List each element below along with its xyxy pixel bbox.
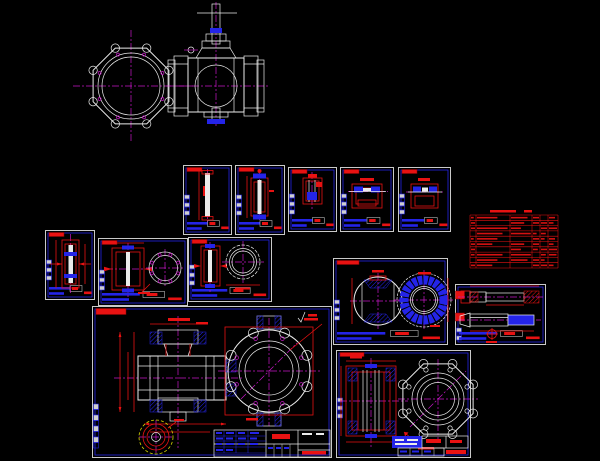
drawing-stem-long[interactable] (50, 234, 91, 295)
table-cell-text (541, 238, 545, 240)
revision-cell (290, 194, 295, 198)
drawing-seat-b[interactable] (406, 178, 444, 208)
revision-cell (335, 304, 340, 308)
drawing-body-section[interactable] (114, 316, 242, 448)
revision-cell (94, 443, 99, 449)
table-cell-text (533, 259, 539, 261)
table-cell-text (549, 254, 557, 256)
table-cell-text (549, 222, 554, 224)
table-cell-text (471, 222, 475, 224)
drawing-ball-section[interactable] (350, 270, 406, 329)
title-block-stamp (72, 287, 78, 290)
table-cell-text (477, 238, 497, 240)
title-block-stamp (395, 332, 409, 335)
table-cell-text (511, 249, 521, 251)
revision-cell (400, 210, 405, 214)
revision-cell (237, 195, 242, 199)
sheet-frame-seat-a[interactable] (341, 168, 394, 232)
part-label-chip (344, 170, 359, 174)
title-block-bar (192, 289, 227, 292)
table-cell-text (471, 254, 475, 256)
title-block-stamp (526, 337, 540, 340)
title-block-bar (344, 224, 360, 227)
sheet-frame-ball[interactable] (334, 259, 448, 345)
title-block-bar (344, 219, 367, 222)
drawing-packing-face[interactable] (138, 249, 184, 294)
revision-cell (400, 194, 405, 198)
table-cell-text (511, 217, 528, 219)
drawing-body-flange[interactable] (218, 316, 322, 426)
table-cell-text (549, 243, 554, 245)
revision-cell (237, 207, 242, 211)
title-block-bar (337, 332, 385, 335)
title-block-stamp (427, 219, 433, 222)
title-block-stamp (439, 224, 447, 227)
revision-cell (342, 210, 347, 214)
revision-cell (237, 199, 242, 203)
part-label-chip (337, 261, 359, 265)
table-cell-text (511, 233, 531, 235)
table-cell-text (471, 227, 475, 229)
table-cell-text (511, 227, 521, 229)
part-label-chip (192, 240, 207, 244)
title-block-bar (49, 292, 64, 295)
revision-cell (342, 206, 347, 210)
title-block-stamp (369, 219, 375, 222)
part-label-chip (96, 309, 126, 315)
table-cell-text (477, 227, 508, 229)
table-cell-text (511, 254, 531, 256)
revision-cell (338, 402, 343, 406)
revision-cell (185, 211, 190, 215)
title-block-stamp (254, 294, 267, 297)
table-cell-text (541, 227, 547, 229)
title-block-stamp (168, 298, 182, 301)
drawing-stem-detail[interactable] (486, 328, 498, 343)
table-cell-text (511, 243, 524, 245)
revision-cell (338, 406, 343, 410)
table-cell-text (477, 217, 497, 219)
part-label-chip (292, 170, 307, 174)
table-cell-text (533, 243, 539, 245)
revision-cell (94, 421, 99, 427)
title-block-bar (239, 227, 254, 230)
revision-cell (190, 281, 195, 285)
table-cell-text (477, 233, 503, 235)
title-block-stamp (221, 227, 228, 230)
table-title-bar (490, 210, 516, 213)
revision-cell (290, 198, 295, 202)
revision-cell (457, 328, 462, 332)
table-cell-text (471, 217, 474, 219)
revision-cell (190, 269, 195, 273)
title-block-bar (402, 219, 424, 222)
part-label-chip (456, 291, 465, 299)
table-cell-text (533, 222, 539, 224)
revision-cell (290, 206, 295, 210)
title-block-bar (192, 294, 217, 297)
part-label-chip (340, 353, 364, 357)
title-block-stamp (262, 222, 268, 225)
assembly-section-view[interactable] (166, 2, 268, 127)
revision-cell (335, 308, 340, 312)
part-label-chip (402, 170, 417, 174)
revision-cell (47, 260, 52, 264)
drawing-bonnet-section[interactable] (340, 356, 408, 448)
revision-cell (338, 410, 343, 414)
revision-cell (290, 210, 295, 214)
table-cell-text (533, 233, 537, 235)
sheet-inner-border (95, 309, 329, 455)
table-cell-text (549, 217, 555, 219)
drawing-stem-lower[interactable] (458, 313, 541, 331)
revision-cell (338, 414, 343, 418)
revision-cell (47, 272, 52, 276)
revision-cell (190, 273, 195, 277)
title-block-stamp (314, 219, 320, 222)
table-cell-text (541, 259, 545, 261)
revision-cell (185, 203, 190, 207)
revision-cell (190, 277, 195, 281)
revision-cell (47, 276, 52, 280)
revision-cell (100, 286, 105, 290)
table-title-bar (524, 210, 532, 213)
title-block-stamp (209, 222, 215, 225)
bonnet-title-block (392, 436, 468, 456)
revision-cell (342, 202, 347, 206)
revision-cell (237, 211, 242, 215)
title-block-stamp (84, 292, 92, 295)
title-block-bar (102, 298, 129, 301)
drawing-pin[interactable] (199, 169, 213, 222)
part-label-chip (102, 241, 117, 245)
drawing-seat-ring-section[interactable] (194, 242, 227, 292)
table-cell-text (471, 265, 475, 267)
table-cell-text (541, 249, 547, 251)
cad-drawing-layer[interactable] (0, 0, 600, 461)
table-cell-text (477, 254, 503, 256)
revision-cell (185, 207, 190, 211)
title-block-stamp (382, 224, 390, 227)
revision-cell (100, 270, 105, 274)
drawing-seat-ring-face[interactable] (222, 241, 264, 290)
sheet-frame-seat-b[interactable] (399, 168, 451, 232)
revision-cell (400, 198, 405, 202)
table-cell-text (549, 265, 554, 267)
revision-cell (94, 410, 99, 416)
title-block-bar (337, 337, 372, 340)
title-block-stamp (423, 337, 440, 340)
revision-cell (237, 203, 242, 207)
revision-cell (94, 426, 99, 432)
revision-cell (94, 437, 99, 443)
table-cell-text (541, 254, 546, 256)
title-block-bar (459, 337, 486, 340)
revision-cell (47, 268, 52, 272)
revision-cell (335, 300, 340, 304)
revision-cell (94, 415, 99, 421)
part-label-chip (187, 168, 202, 172)
drawing-gland[interactable] (303, 172, 322, 210)
part-label-chip (49, 233, 64, 237)
table-cell-text (549, 227, 557, 229)
revision-cell (290, 202, 295, 206)
table-cell-text (533, 249, 538, 251)
table-cell-text (471, 243, 475, 245)
revision-cell (185, 199, 190, 203)
table-cell-text (511, 259, 528, 261)
parts-list-table[interactable] (470, 210, 558, 268)
table-cell-text (477, 259, 497, 261)
title-block-bar (187, 222, 208, 225)
revision-cell (47, 264, 52, 268)
revision-cell (342, 198, 347, 202)
revision-cell (94, 404, 99, 410)
table-cell-text (477, 243, 492, 245)
revision-cell (338, 398, 343, 402)
table-cell-text (541, 233, 546, 235)
table-cell-text (533, 265, 539, 267)
title-block-stamp (274, 227, 282, 230)
revision-cell (342, 194, 347, 198)
revision-cell (100, 282, 105, 286)
table-cell-text (541, 265, 547, 267)
title-block-bar (292, 224, 307, 227)
table-cell-text (533, 238, 539, 240)
title-block-bar (292, 219, 313, 222)
title-block-bar (402, 224, 418, 227)
table-cell-text (549, 238, 555, 240)
title-block-stamp (504, 332, 515, 335)
drawing-stem-small[interactable] (247, 169, 274, 222)
table-cell-text (471, 249, 475, 251)
revision-cell (185, 195, 190, 199)
revision-cell (190, 265, 195, 269)
title-block-bar (187, 227, 202, 230)
drawing-seat-a[interactable] (348, 178, 388, 208)
revision-cell (400, 206, 405, 210)
body-title-block (214, 430, 330, 457)
revision-cell (94, 432, 99, 438)
title-block-stamp (326, 224, 333, 227)
part-label-chip (239, 168, 254, 172)
revision-cell (335, 312, 340, 316)
table-cell-text (533, 217, 539, 219)
title-block-bar (239, 222, 260, 225)
table-cell-text (541, 222, 547, 224)
title-block-bar (102, 293, 140, 296)
revision-cell (400, 202, 405, 206)
drawing-stem-upper[interactable] (458, 286, 543, 305)
revision-cell (100, 274, 105, 278)
revision-cell (100, 278, 105, 282)
table-cell-text (471, 238, 474, 240)
cad-model-space[interactable] (0, 0, 600, 461)
table-cell-text (477, 265, 492, 267)
table-cell-text (549, 249, 557, 251)
table-cell-text (511, 222, 524, 224)
sheet-frames-layer (46, 166, 559, 458)
revision-cell (335, 316, 340, 320)
